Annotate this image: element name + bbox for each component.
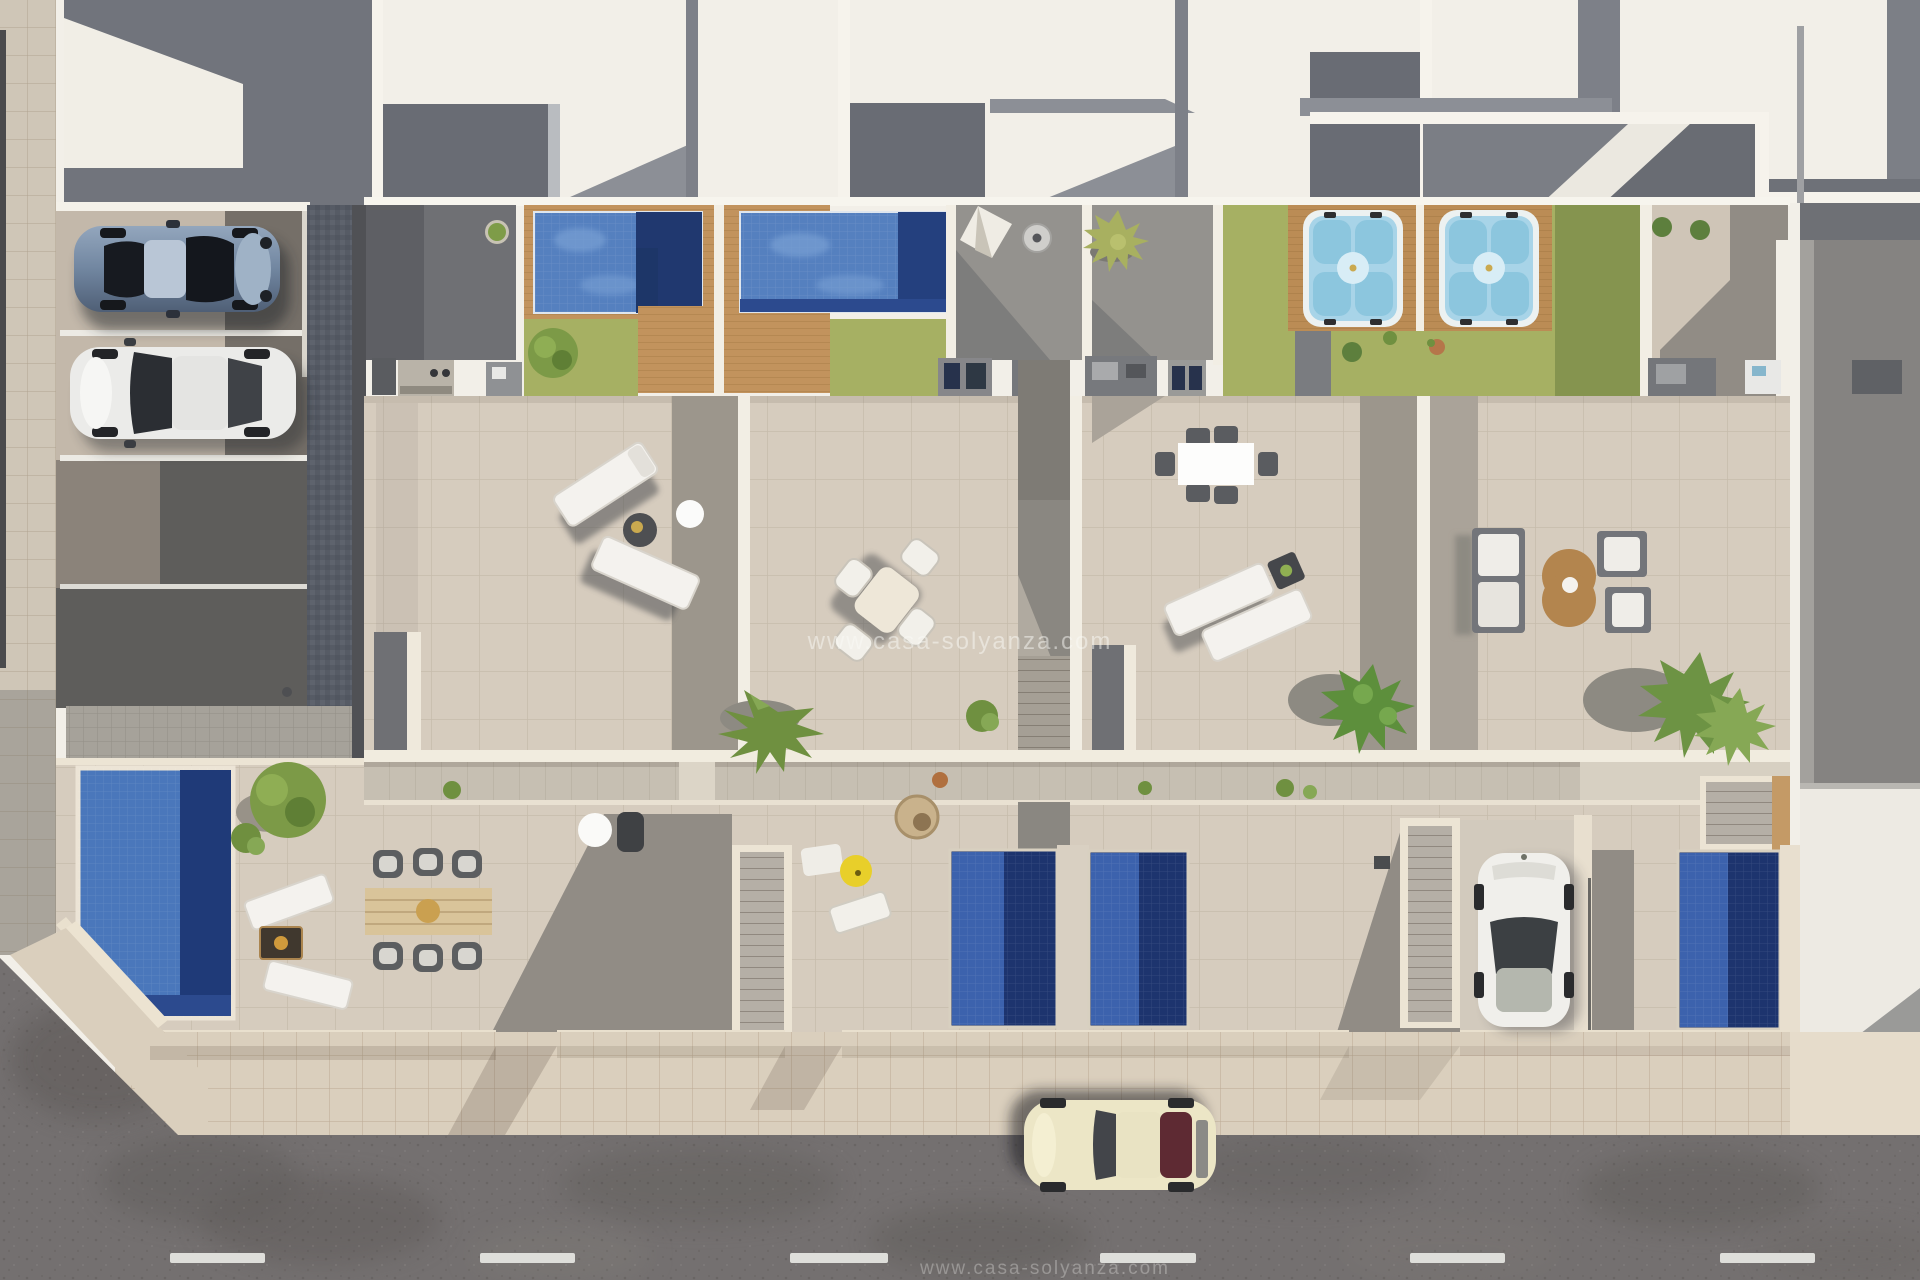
svg-text:www.casa-solyanza.com: www.casa-solyanza.com [919,1258,1170,1279]
svg-text:www.casa-solyanza.com: www.casa-solyanza.com [807,628,1113,655]
